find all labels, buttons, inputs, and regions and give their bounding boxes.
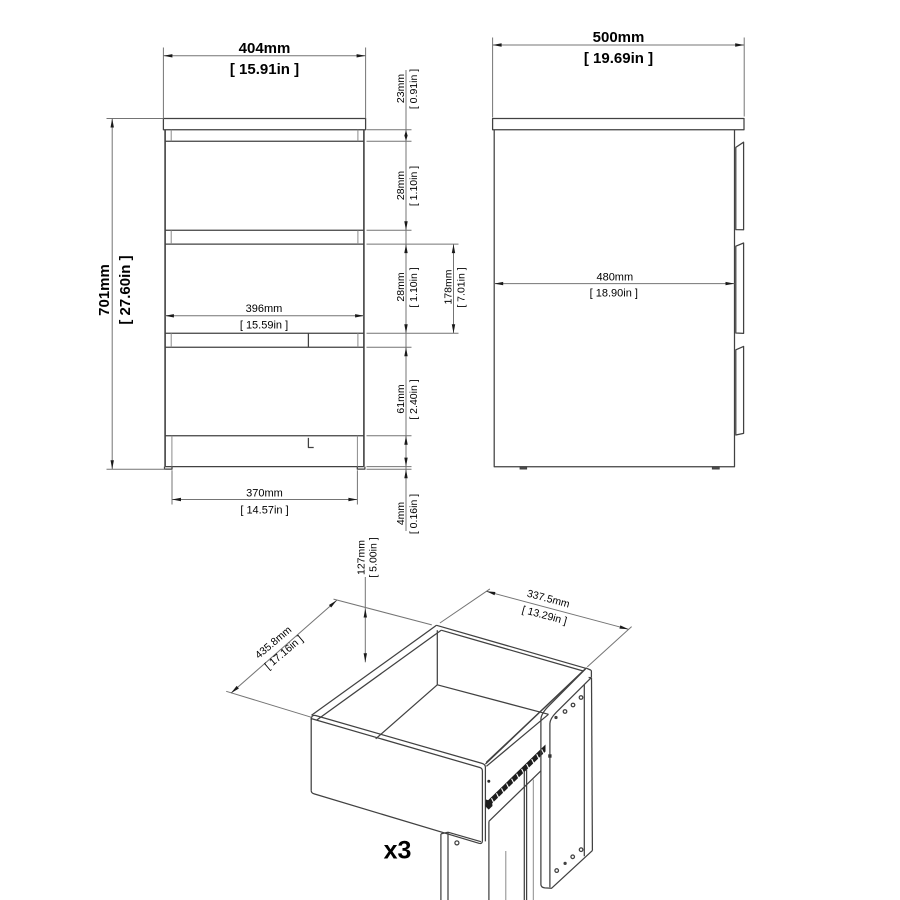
svg-text:[ 7.01in ]: [ 7.01in ]: [456, 267, 468, 307]
svg-text:396mm: 396mm: [246, 303, 283, 315]
svg-text:23mm: 23mm: [395, 74, 407, 103]
svg-text:28mm: 28mm: [395, 272, 407, 301]
svg-text:480mm: 480mm: [596, 272, 633, 284]
svg-text:[ 2.40in ]: [ 2.40in ]: [408, 379, 420, 419]
svg-text:61mm: 61mm: [395, 384, 407, 413]
svg-text:[ 18.90in ]: [ 18.90in ]: [590, 287, 638, 299]
svg-text:28mm: 28mm: [395, 171, 407, 200]
svg-text:[ 0.91in ]: [ 0.91in ]: [408, 69, 420, 109]
svg-text:370mm: 370mm: [246, 488, 283, 500]
svg-text:[ 0.16in ]: [ 0.16in ]: [408, 494, 420, 534]
svg-text:[ 1.10in ]: [ 1.10in ]: [408, 166, 420, 206]
svg-text:500mm: 500mm: [593, 29, 645, 46]
svg-text:[ 1.10in ]: [ 1.10in ]: [408, 267, 420, 307]
svg-text:x3: x3: [384, 837, 412, 865]
svg-text:127mm: 127mm: [356, 540, 368, 575]
svg-text:[ 15.59in ]: [ 15.59in ]: [240, 320, 288, 332]
svg-text:[ 15.91in ]: [ 15.91in ]: [230, 61, 299, 78]
svg-text:701mm: 701mm: [96, 264, 113, 316]
svg-text:404mm: 404mm: [239, 40, 291, 57]
svg-text:178mm: 178mm: [442, 269, 454, 304]
svg-text:[ 19.69in ]: [ 19.69in ]: [584, 50, 653, 67]
svg-text:[ 27.60in ]: [ 27.60in ]: [117, 255, 134, 324]
svg-text:[ 5.00in ]: [ 5.00in ]: [367, 537, 379, 577]
svg-text:[ 14.57in ]: [ 14.57in ]: [240, 505, 288, 517]
svg-text:4mm: 4mm: [395, 502, 407, 526]
